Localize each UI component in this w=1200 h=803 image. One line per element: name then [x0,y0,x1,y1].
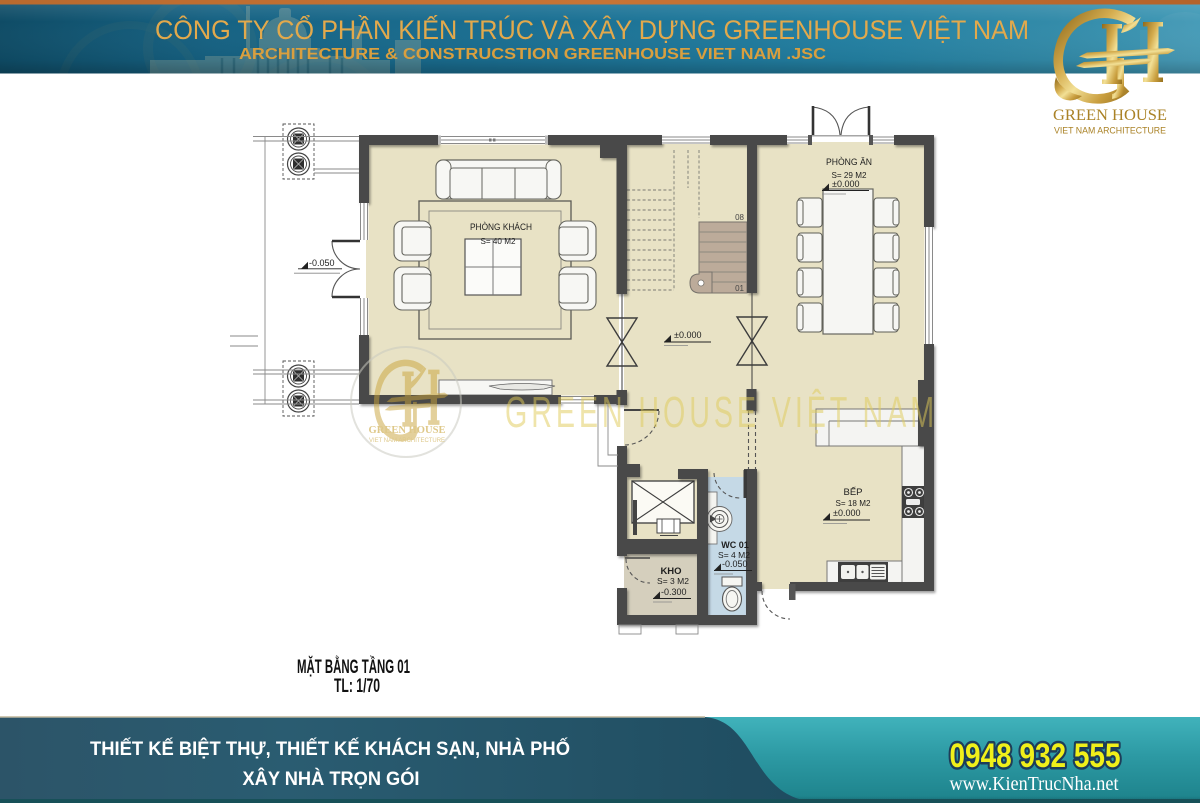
svg-text:S= 40 M2: S= 40 M2 [481,236,516,246]
svg-text:VIET NAM ARCHITECTURE: VIET NAM ARCHITECTURE [1054,126,1166,137]
svg-text:S= 3 M2: S= 3 M2 [657,576,689,586]
svg-text:±0.000: ±0.000 [832,179,859,189]
svg-text:S= 18 M2: S= 18 M2 [836,498,871,508]
svg-text:PHÒNG ĂN: PHÒNG ĂN [826,157,872,168]
svg-text:www.KienTrucNha.net: www.KienTrucNha.net [950,773,1119,795]
svg-text:08: 08 [735,213,744,222]
svg-text:±0.000: ±0.000 [833,508,860,518]
svg-text:±0.000: ±0.000 [674,330,701,340]
svg-text:TL: 1/70: TL: 1/70 [334,676,380,697]
svg-text:MẶT BẰNG TẦNG 01: MẶT BẰNG TẦNG 01 [297,656,410,678]
svg-text:01: 01 [735,284,744,293]
svg-text:THIẾT KẾ BIỆT THỰ, THIẾT KẾ KH: THIẾT KẾ BIỆT THỰ, THIẾT KẾ KHÁCH SẠN, N… [90,738,570,760]
svg-text:ARCHITECTURE & CONSTRUCSTION G: ARCHITECTURE & CONSTRUCSTION GREENHOUSE … [239,46,826,63]
svg-text:CÔNG TY CỔ PHẦN KIẾN TRÚC VÀ X: CÔNG TY CỔ PHẦN KIẾN TRÚC VÀ XÂY DỰNG GR… [155,14,1029,45]
svg-text:XÂY NHÀ TRỌN GÓI: XÂY NHÀ TRỌN GÓI [243,768,420,790]
svg-text:GREEN HOUSE: GREEN HOUSE [1053,107,1167,124]
svg-text:BẾP: BẾP [843,487,862,498]
svg-text:-0.050: -0.050 [722,559,748,569]
svg-text:-0.050: -0.050 [309,258,335,268]
svg-text:GREEN HOUSE VIỆT NAM: GREEN HOUSE VIỆT NAM [505,388,938,437]
svg-text:VIET NAM ARCHITECTURE: VIET NAM ARCHITECTURE [369,438,445,444]
svg-text:S= 29 M2: S= 29 M2 [832,170,867,180]
svg-text:S= 4 M2: S= 4 M2 [718,550,750,560]
svg-text:GREEN HOUSE: GREEN HOUSE [369,424,446,436]
svg-text:-0.300: -0.300 [661,587,687,597]
svg-text:0948 932 555: 0948 932 555 [950,737,1121,775]
svg-text:WC 01: WC 01 [721,540,749,550]
svg-text:PHÒNG KHÁCH: PHÒNG KHÁCH [470,222,532,233]
